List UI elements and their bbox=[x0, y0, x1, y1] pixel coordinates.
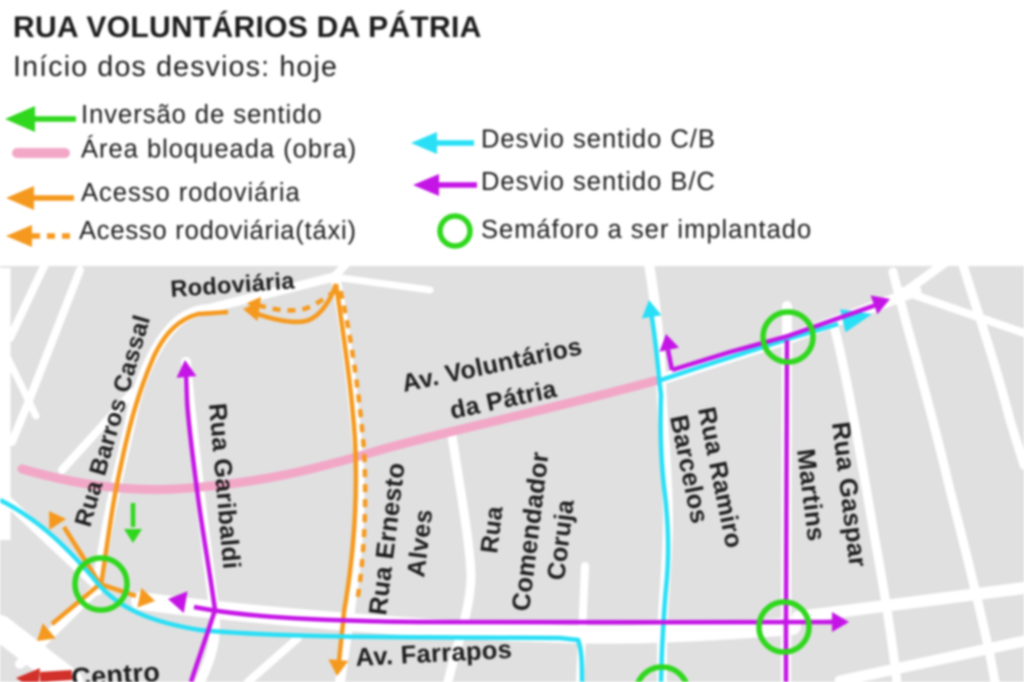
svg-text:Rua: Rua bbox=[476, 505, 509, 555]
svg-text:Acesso rodoviária: Acesso rodoviária bbox=[81, 179, 301, 207]
svg-text:Desvio sentido C/B: Desvio sentido C/B bbox=[481, 126, 716, 154]
svg-text:Área bloqueada (obra): Área bloqueada (obra) bbox=[81, 135, 357, 164]
svg-text:RUA VOLUNTÁRIOS DA PÁTRIA: RUA VOLUNTÁRIOS DA PÁTRIA bbox=[13, 10, 482, 44]
svg-text:Acesso rodoviária(táxi): Acesso rodoviária(táxi) bbox=[79, 217, 357, 245]
svg-text:Inversão de sentido: Inversão de sentido bbox=[81, 101, 323, 129]
svg-text:Semáforo a ser implantado: Semáforo a ser implantado bbox=[481, 216, 812, 244]
svg-text:Início dos desvios: hoje: Início dos desvios: hoje bbox=[13, 51, 338, 83]
svg-text:Desvio sentido B/C: Desvio sentido B/C bbox=[481, 168, 716, 196]
